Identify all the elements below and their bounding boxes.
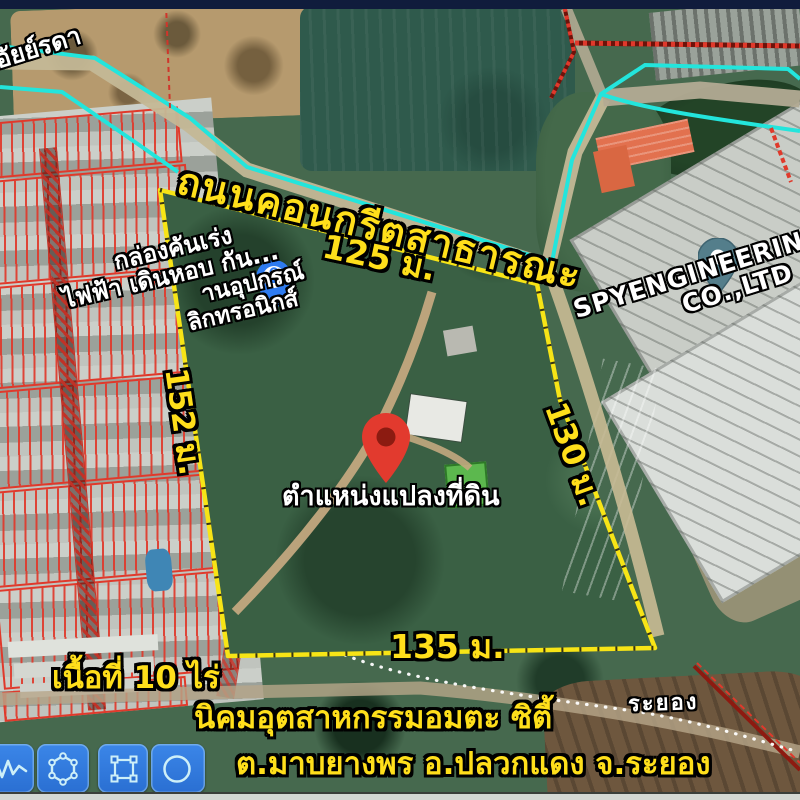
red-line-topleft-thin (166, 4, 170, 108)
red-line-bottomright-diagonal-dash (697, 663, 800, 763)
satellite-map-viewport[interactable]: อัยย์รดา ถนนคอนกรีตสาธารณะ 125 ม. 152 ม.… (0, 0, 800, 800)
top-window-bar (0, 0, 800, 9)
circle-tool-button[interactable] (151, 744, 205, 793)
freehand-draw-button[interactable] (0, 744, 34, 793)
circle-tool-icon (157, 749, 197, 789)
road-topright-horizontal (603, 90, 800, 99)
plot-pin-label: ตำแหน่งแปลงที่ดิน (282, 482, 500, 511)
footer-area-line: เนื้อที่ 10 ไร่ (52, 662, 220, 695)
land-plot-pin-red[interactable] (362, 413, 410, 483)
footer-estate-line: นิคมอุตสาหกรรมอมตะ ซิตี้ (194, 702, 552, 735)
bottom-window-bar (0, 792, 800, 800)
rectangle-tool-icon (104, 749, 144, 789)
polygon-tool-icon (43, 749, 83, 789)
polygon-tool-button[interactable] (37, 744, 89, 793)
province-label: ระยอง (628, 691, 699, 717)
rectangle-tool-button[interactable] (98, 744, 148, 793)
freehand-draw-icon (0, 749, 28, 789)
dimension-bottom: 135 ม. (390, 629, 505, 665)
footer-address-line: ต.มาบยางพร อ.ปลวกแดง จ.ระยอง (236, 748, 710, 781)
red-line-right-edge (771, 128, 791, 182)
